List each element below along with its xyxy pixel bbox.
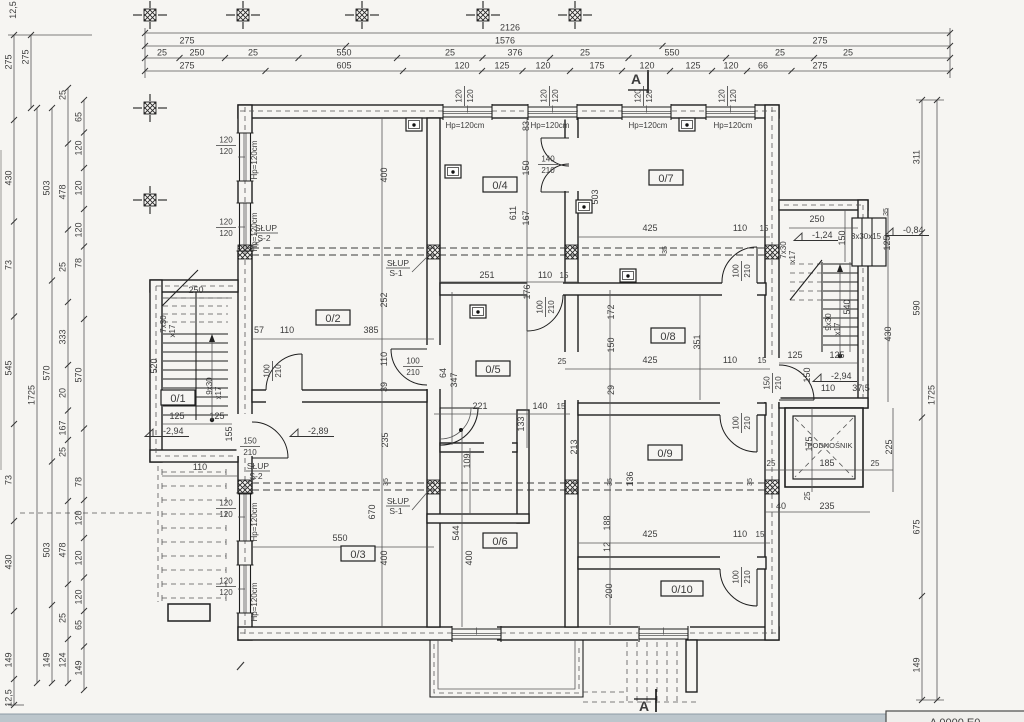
annotation-text: 125	[787, 350, 802, 360]
dim-text: 25	[580, 48, 590, 58]
annotation-text: 40	[776, 501, 786, 511]
fraction-top: 100	[732, 264, 741, 278]
dim-text: 125	[494, 61, 509, 71]
fraction-top: 120	[540, 89, 549, 103]
fraction-bottom: 120	[219, 147, 233, 156]
annotation-text: 110	[733, 223, 747, 233]
annotation-text: 12	[602, 542, 612, 552]
room-label-text: 0/10	[671, 584, 692, 596]
annotation-text: 15	[758, 356, 767, 365]
dim-text: 78	[74, 258, 84, 268]
annotation-text: 125	[829, 350, 844, 360]
dim-text: 311	[912, 150, 922, 164]
dim-text: 120	[74, 550, 84, 565]
scanned-floor-plan-page: A 0000 E0 212627515762752525025550253762…	[0, 0, 1024, 722]
size-fraction-label: 120120	[540, 86, 561, 106]
room-label-text: 0/2	[325, 313, 340, 325]
annotation-text: 15	[560, 271, 569, 280]
dim-text: 120	[74, 589, 84, 604]
grid-cross-icon	[558, 1, 592, 29]
annotation-text: Hp=120cm	[446, 121, 485, 130]
annotation-text: 400	[464, 550, 474, 565]
dim-text: 124	[58, 652, 68, 667]
dim-text: 25	[157, 48, 167, 58]
external-steps	[852, 218, 886, 266]
annotation-text: 167	[521, 210, 531, 225]
annotation-text: 175	[804, 436, 814, 451]
annotation-text: 29	[606, 385, 616, 395]
fraction-bottom: 120	[219, 588, 233, 597]
annotation-text: 12,5	[8, 1, 18, 19]
grid-cross-icon	[466, 1, 500, 29]
dim-text: 73	[4, 260, 14, 270]
size-fraction-label: 140210	[538, 155, 558, 176]
annotation-text: 200	[604, 583, 614, 598]
column	[765, 245, 779, 259]
dim-text: 25	[843, 48, 853, 58]
grid-cross-icon	[133, 186, 167, 214]
level-triangle-icon	[290, 429, 298, 437]
annotation-text: 25	[767, 459, 776, 468]
radiator-fixture-icon	[679, 118, 695, 131]
annotation-text: 133	[516, 416, 526, 431]
annotation-text: 351	[692, 334, 702, 349]
annotation-text: 520	[149, 358, 159, 373]
annotation-text: 9x30	[824, 313, 833, 331]
size-fraction-label: 120120	[216, 499, 236, 520]
level-text: -1,24	[812, 230, 833, 240]
dim-text: 120	[74, 222, 84, 237]
fraction-bottom: 210	[774, 376, 783, 390]
fraction-top: 100	[263, 364, 272, 378]
radiator-fixture-icon	[576, 200, 592, 213]
annotation-text: 39	[379, 382, 389, 392]
column-label: SŁUP	[247, 461, 270, 471]
annotation-text: 425	[642, 355, 657, 365]
size-fraction-label: 100210	[536, 297, 557, 317]
room-label-text: 0/6	[492, 536, 507, 548]
column-label: SŁUP	[387, 496, 410, 506]
room-label-text: 0/3	[350, 549, 365, 561]
annotation-text: 57	[254, 325, 264, 335]
fraction-top: 120	[718, 89, 727, 103]
wall-top	[238, 105, 779, 118]
dim-text: 25	[58, 447, 68, 457]
fraction-top: 100	[406, 357, 420, 366]
dim-text: 25	[248, 48, 258, 58]
scanner-strip	[0, 714, 1024, 722]
annotation-text: 425	[642, 529, 657, 539]
size-fraction-label: 150210	[240, 437, 260, 458]
annotation-text: 400	[379, 167, 389, 182]
fraction-top: 150	[243, 437, 257, 446]
column-label: SŁUP	[255, 223, 278, 233]
dim-text: 167	[58, 420, 68, 435]
external-stair-bottom	[583, 642, 700, 702]
grid-cross-icon	[226, 1, 260, 29]
annotation-text: 110	[379, 352, 389, 366]
annotation-text: 35	[383, 478, 390, 486]
fraction-top: 120	[455, 89, 464, 103]
column-label: S-2	[249, 471, 263, 481]
dim-text: 503	[42, 180, 52, 195]
dim-text: 275	[179, 61, 194, 71]
room-label-text: 0/5	[485, 364, 500, 376]
radiator-fixture-icon	[470, 305, 486, 318]
fraction-top: 120	[219, 499, 233, 508]
room-label-text: 0/9	[657, 448, 672, 460]
dim-text: 503	[42, 542, 52, 557]
dim-text: 149	[74, 660, 84, 675]
annotation-text: Hp=120cm	[250, 502, 259, 541]
dim-text: 12,5	[4, 689, 14, 707]
fraction-bottom: 120	[466, 89, 475, 103]
title-block: A 0000 E0	[886, 711, 1024, 722]
dim-text: 333	[58, 329, 68, 344]
dim-text: 2126	[500, 23, 520, 33]
annotation-text: 176	[522, 284, 532, 299]
dim-text: 120	[454, 61, 469, 71]
dim-text: 275	[4, 54, 14, 69]
fraction-bottom: 120	[645, 89, 654, 103]
column-s1	[427, 245, 440, 259]
annotation-text: 15	[756, 530, 765, 539]
level-text: -0,84	[903, 225, 924, 235]
fraction-top: 120	[219, 577, 233, 586]
size-fraction-label: 120120	[718, 86, 739, 106]
dim-text: 20	[58, 388, 68, 398]
fraction-bottom: 120	[551, 89, 560, 103]
annotation-text: 9x30	[205, 377, 214, 395]
fraction-bottom: 210	[743, 570, 752, 584]
annotation-text: 110	[538, 270, 552, 280]
annotation-text: 425	[642, 223, 657, 233]
fraction-bottom: 120	[219, 229, 233, 238]
annotation-text: 150	[521, 160, 531, 175]
size-fraction-label: 120120	[634, 86, 655, 106]
level-triangle-icon	[813, 374, 821, 382]
annotation-text: 125	[209, 411, 224, 421]
fraction-bottom: 120	[729, 89, 738, 103]
column	[565, 245, 578, 259]
annotation-text: 25	[558, 357, 567, 366]
annotation-text: 110	[723, 355, 737, 365]
annotation-text: 235	[819, 501, 834, 511]
dim-text: 25	[445, 48, 455, 58]
fraction-top: 140	[541, 155, 555, 164]
size-fraction-label: 120120	[216, 136, 236, 157]
annotation-text: x17	[788, 250, 797, 263]
radiator-fixture-icon	[445, 165, 461, 178]
annotation-text: 25	[803, 491, 812, 500]
fraction-bottom: 210	[743, 264, 752, 278]
dim-text: 430	[4, 554, 14, 569]
dim-text: 120	[723, 61, 738, 71]
size-fraction-label: 120120	[216, 577, 236, 598]
exterior-pier	[686, 640, 697, 692]
level-text: -2,94	[163, 426, 184, 436]
annotation-text: 155	[224, 426, 234, 441]
fraction-top: 120	[219, 136, 233, 145]
dim-text: 275	[812, 36, 827, 46]
dim-text: 65	[74, 112, 84, 122]
fraction-top: 120	[634, 89, 643, 103]
dim-text: 149	[912, 657, 922, 672]
dim-text: 675	[912, 519, 922, 534]
annotation-text: 400	[379, 550, 389, 565]
annotation-text: Hp=120cm	[531, 121, 570, 130]
annotation-text: 15	[760, 224, 769, 233]
annotation-text: 37,5	[852, 383, 870, 393]
annotation-text: 110	[821, 383, 835, 393]
dim-text: 275	[21, 49, 31, 64]
annotation-text: 252	[379, 292, 389, 307]
annotation-text: 35	[662, 246, 669, 254]
annotation-text: 35	[747, 478, 754, 486]
annotation-text: Hp=120cm	[250, 140, 259, 179]
annotation-text: 64	[438, 368, 448, 378]
radiator-fixture-icon	[620, 269, 636, 282]
radiator-fixture-icon	[406, 118, 422, 131]
dim-text: 550	[664, 48, 679, 58]
annotation-text: 110	[193, 462, 207, 472]
fraction-bottom: 210	[274, 364, 283, 378]
annotation-text: 544	[451, 525, 461, 540]
dim-text: 275	[179, 36, 194, 46]
annotation-text: 3x30x15	[851, 232, 882, 241]
fraction-top: 100	[732, 416, 741, 430]
column-label: S-1	[389, 268, 403, 278]
fraction-top: 150	[763, 376, 772, 390]
size-fraction-label: 100210	[403, 357, 423, 378]
dim-text: 120	[74, 510, 84, 525]
floor-plan-canvas: A 0000 E0 212627515762752525025550253762…	[0, 0, 1024, 722]
grid-cross-icon	[133, 94, 167, 122]
dim-text: 478	[58, 542, 68, 557]
dim-text: 550	[336, 48, 351, 58]
annotation-text: 110	[733, 529, 747, 539]
annotation-text: 150	[802, 367, 812, 382]
bottom-protrusion	[430, 640, 583, 697]
dim-text: 545	[4, 360, 14, 375]
level-text: -2,94	[831, 371, 852, 381]
fraction-bottom: 210	[406, 368, 420, 377]
size-fraction-label: 100210	[732, 261, 753, 281]
annotation-text: 251	[479, 270, 494, 280]
annotation-text: 150	[606, 337, 616, 352]
annotation-text: 125	[882, 235, 892, 250]
dim-text: 430	[4, 170, 14, 185]
fraction-top: 100	[536, 300, 545, 314]
stair-direction-arrow	[209, 334, 215, 342]
annotation-text: 136	[625, 471, 635, 486]
annotation-text: 25	[871, 459, 880, 468]
annotation-text: 185	[819, 458, 834, 468]
dim-text: 376	[507, 48, 522, 58]
room-label-text: 0/7	[658, 173, 673, 185]
annotation-text: 150	[837, 230, 847, 245]
stair-direction-arrow	[837, 264, 843, 272]
dim-text: 78	[74, 477, 84, 487]
section-marker-text: A	[631, 71, 641, 87]
column-label: SŁUP	[387, 258, 410, 268]
dim-text: 605	[336, 61, 351, 71]
size-fraction-label: 100210	[263, 361, 284, 381]
shower-tray	[440, 408, 478, 445]
column-label: S-2	[257, 233, 271, 243]
column	[565, 480, 578, 494]
wall-bath-h2	[427, 514, 529, 523]
annotation-text: 670	[367, 504, 377, 519]
annotation-text: 611	[508, 206, 518, 220]
dim-text: 25	[58, 613, 68, 623]
dim-text: 25	[775, 48, 785, 58]
dim-text: 250	[189, 48, 204, 58]
annotation-text: 172	[606, 304, 616, 319]
annotation-text: 125	[169, 411, 184, 421]
annotation-text: 540	[842, 299, 852, 314]
column-s1	[427, 480, 440, 494]
size-fraction-label: 120120	[216, 218, 236, 239]
wall-bottom	[238, 627, 779, 640]
grid-cross-icon	[345, 1, 379, 29]
annotation-text: 235	[380, 432, 390, 447]
annotation-text: Hp=120cm	[629, 121, 668, 130]
fraction-top: 120	[219, 218, 233, 227]
wall-h1	[440, 283, 766, 295]
dim-text: 125	[685, 61, 700, 71]
dim-text: 149	[42, 652, 52, 667]
annotation-text: 140	[532, 401, 547, 411]
dim-text: 1725	[927, 385, 937, 405]
dim-text: 25	[58, 90, 68, 100]
dim-text: 149	[4, 652, 14, 667]
dim-text: 175	[589, 61, 604, 71]
dim-text: 1576	[495, 36, 515, 46]
dim-text: 570	[42, 365, 52, 380]
fraction-bottom: 210	[243, 448, 257, 457]
dim-text: 73	[4, 475, 14, 485]
fraction-bottom: 210	[547, 300, 556, 314]
title-block-text: A 0000 E0	[930, 717, 981, 722]
room-label-text: 0/1	[170, 393, 185, 405]
annotation-text: 550	[332, 533, 347, 543]
annotation-text: 188	[602, 515, 612, 530]
annotation-text: 109	[462, 453, 472, 468]
annotation-text: 221	[472, 401, 487, 411]
dim-text: 120	[74, 140, 84, 155]
room-label-text: 0/4	[492, 180, 507, 192]
fraction-top: 100	[732, 570, 741, 584]
fraction-bottom: 210	[743, 416, 752, 430]
section-line-a	[628, 70, 656, 712]
dim-text: 65	[74, 620, 84, 630]
annotation-text: 430	[883, 326, 893, 341]
annotation-text: x17	[168, 324, 177, 337]
level-text: -2,89	[308, 426, 329, 436]
annotation-text: 15	[557, 402, 566, 411]
annotation-text: PODNOŚNIK	[807, 441, 852, 450]
dim-text: 25	[58, 262, 68, 272]
annotation-text: 110	[280, 325, 294, 335]
door-arc	[527, 295, 563, 331]
annotation-text: 35	[607, 478, 614, 486]
dim-text: 120	[74, 180, 84, 195]
annotation-text: 213	[569, 439, 579, 454]
column-label: S-1	[389, 506, 403, 516]
annotation-text: 7x30	[779, 241, 788, 259]
dim-text: 120	[639, 61, 654, 71]
section-marker-text: A	[639, 698, 649, 714]
annotation-text: 347	[449, 372, 459, 387]
size-fraction-label: 120120	[455, 86, 476, 106]
column	[765, 480, 779, 494]
annotation-text: Hp=120cm	[714, 121, 753, 130]
annotation-text: 83	[521, 121, 531, 131]
dim-text: 1725	[27, 385, 37, 405]
exterior-layer	[20, 466, 700, 702]
annotation-text: 250	[809, 214, 824, 224]
annotation-text: x17	[214, 386, 223, 399]
dim-text: 275	[812, 61, 827, 71]
sanitary-layer	[440, 408, 478, 445]
annotation-text: 7x30	[159, 315, 168, 333]
level-triangle-icon	[794, 233, 802, 241]
annotation-text: 385	[363, 325, 378, 335]
grid-cross-icon	[133, 1, 167, 29]
annotation-text: Hp=120cm	[250, 582, 259, 621]
dim-text: 66	[758, 61, 768, 71]
fraction-bottom: 120	[219, 510, 233, 519]
door-arc	[391, 349, 427, 385]
annotation-text: 225	[884, 439, 894, 454]
dim-text: 590	[912, 300, 922, 315]
annotation-text: x17	[833, 322, 842, 335]
dim-text: 570	[74, 367, 84, 382]
room-label-text: 0/8	[660, 331, 675, 343]
dim-text: 478	[58, 184, 68, 199]
dim-text: 120	[535, 61, 550, 71]
door-arc	[252, 422, 288, 458]
fraction-bottom: 210	[541, 166, 555, 175]
annotation-text: 35	[883, 208, 890, 216]
annotation-text: 250	[188, 285, 203, 295]
